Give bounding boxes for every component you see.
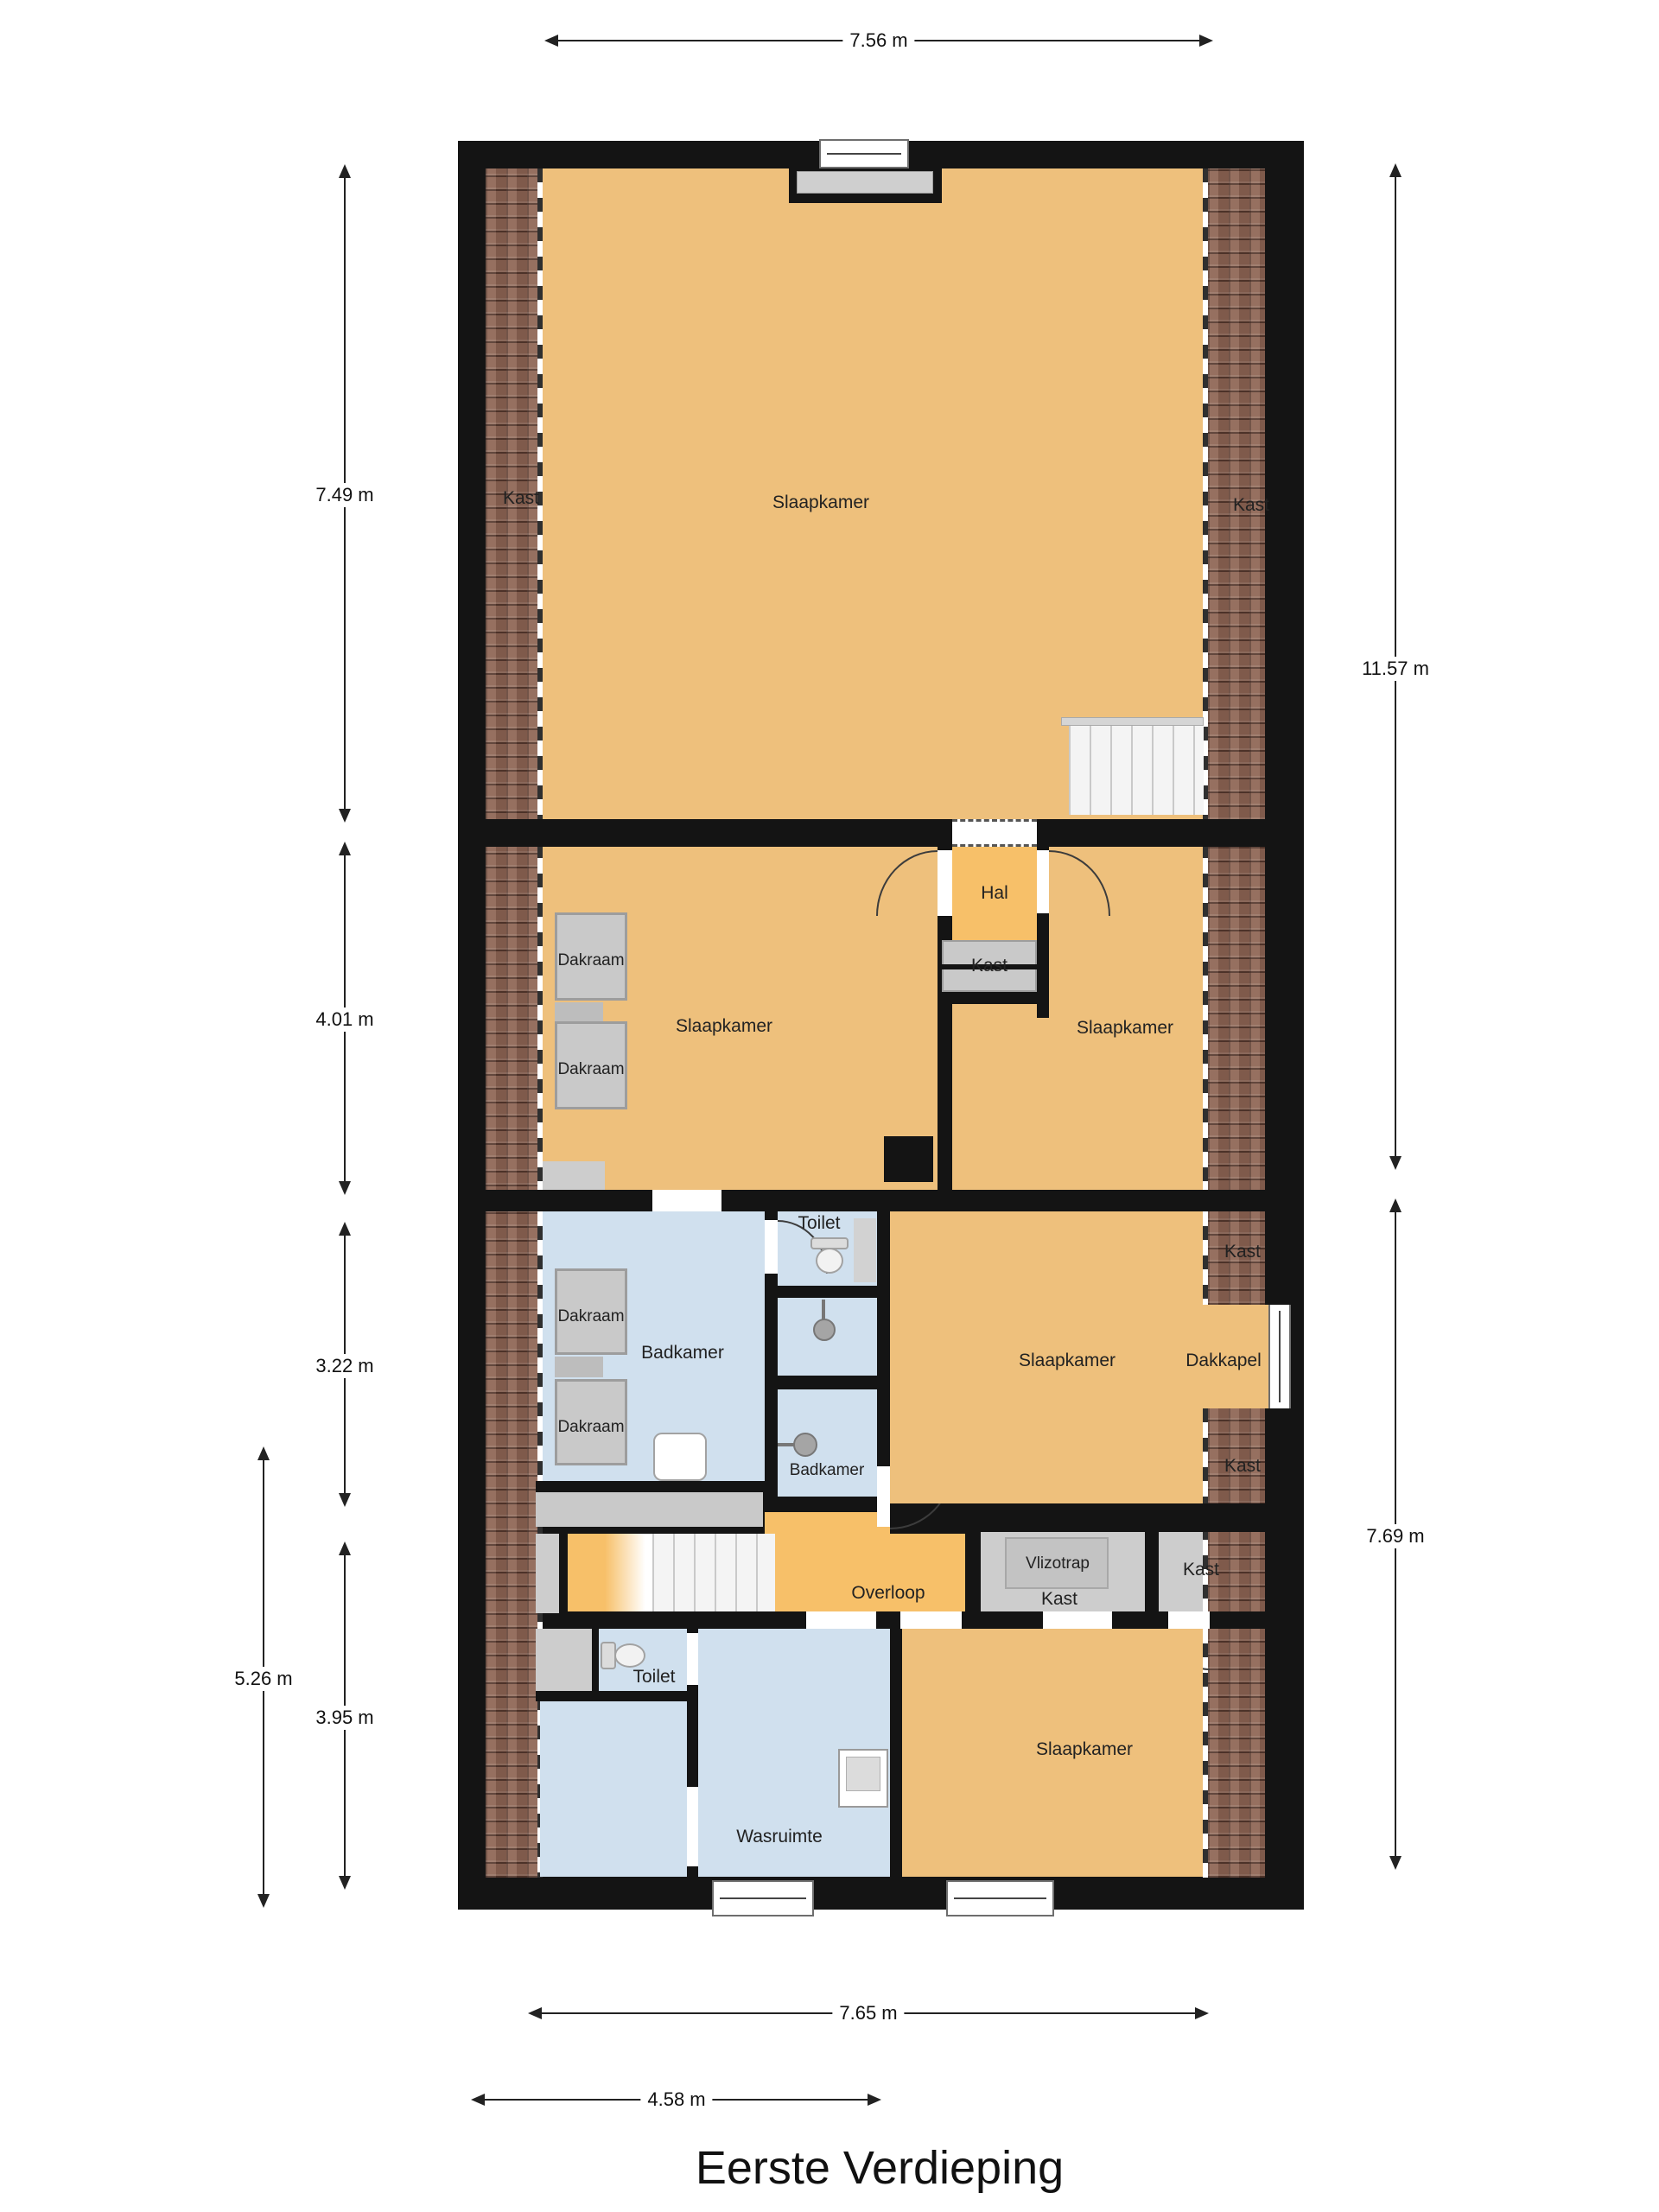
wall	[559, 1527, 568, 1613]
wall	[1145, 1532, 1159, 1611]
arrow-head	[339, 842, 351, 855]
wall	[486, 819, 1270, 847]
arrow-head	[1199, 35, 1213, 47]
label-kast-top-right: Kast	[1233, 495, 1269, 516]
label-kast-right-2: Kast	[1224, 1456, 1261, 1477]
dim-label-right-lower: 7.69 m	[1359, 1524, 1431, 1548]
shower-head-line	[822, 1300, 825, 1320]
dakraam-connector	[555, 1002, 603, 1021]
wall	[1265, 1289, 1304, 1305]
label-wasruimte: Wasruimte	[736, 1827, 823, 1847]
wall	[1265, 1408, 1304, 1424]
arrow-head	[339, 1181, 351, 1195]
arrow-head	[1389, 1156, 1402, 1170]
washing-machine-door	[846, 1757, 880, 1791]
wall	[890, 1629, 902, 1877]
wall	[959, 1503, 1270, 1532]
room-slaapkamer-middle-right-ext	[942, 992, 1049, 1190]
door-opening	[1037, 850, 1049, 913]
toilet-fixture-bowl	[614, 1643, 645, 1668]
wall	[778, 1286, 877, 1298]
label-badkamer-small: Badkamer	[790, 1461, 865, 1480]
dim-label-left-lower: 3.95 m	[308, 1706, 380, 1730]
label-slaapkamer-middle-left: Slaapkamer	[676, 1016, 772, 1037]
label-dakraam-3: Dakraam	[557, 1307, 624, 1326]
label-kast-right-1: Kast	[1224, 1242, 1261, 1262]
label-kast-row: Kast	[1183, 1560, 1219, 1580]
stair-railing	[1061, 717, 1204, 726]
window	[946, 1880, 1054, 1916]
toilet-fixture-bowl	[816, 1248, 843, 1274]
arrow-head	[257, 1894, 270, 1908]
label-toilet-upper: Toilet	[798, 1213, 840, 1234]
closet-floor	[536, 1492, 763, 1527]
door-opening	[687, 1633, 698, 1685]
wall	[592, 1629, 599, 1691]
arrow-head	[868, 2094, 881, 2106]
sink	[653, 1433, 707, 1481]
arrow-head	[339, 1222, 351, 1236]
shower-drain	[793, 1433, 817, 1457]
arrow-head	[528, 2007, 542, 2019]
dim-label-bottom: 7.65 m	[832, 2001, 904, 2025]
label-kast-top-left: Kast	[503, 488, 539, 509]
wall	[536, 1691, 694, 1701]
arrow-head	[257, 1446, 270, 1460]
door-opening	[1168, 1611, 1210, 1629]
arrow-head	[339, 1541, 351, 1555]
staircase-main	[1069, 726, 1204, 815]
floor-title: Eerste Verdieping	[696, 2141, 1064, 2195]
shower-drain	[813, 1319, 836, 1341]
shower-pipe	[778, 1443, 795, 1446]
label-slaapkamer-top: Slaapkamer	[772, 493, 869, 513]
closet-floor	[536, 1629, 592, 1691]
staircase-overloop	[652, 1534, 775, 1611]
dim-label-top: 7.56 m	[842, 29, 914, 53]
label-slaapkamer-bottom: Slaapkamer	[1036, 1739, 1133, 1760]
door-opening	[1043, 1611, 1112, 1629]
label-overloop: Overloop	[851, 1583, 925, 1604]
dim-label-left-outer: 5.26 m	[227, 1667, 299, 1691]
arrow-head	[544, 35, 558, 47]
arrow-head	[1195, 2007, 1209, 2019]
wall	[536, 1481, 778, 1492]
door-opening	[938, 850, 952, 916]
door-opening	[765, 1220, 778, 1274]
passage-opening	[687, 1787, 698, 1866]
label-dakkapel: Dakkapel	[1185, 1351, 1262, 1371]
roof-strip-left	[486, 168, 537, 1878]
arrow-head	[339, 1493, 351, 1507]
label-slaapkamer-middle-right: Slaapkamer	[1077, 1018, 1173, 1039]
label-dakraam-1: Dakraam	[557, 951, 624, 970]
label-vlizotrap: Vlizotrap	[1026, 1554, 1090, 1573]
door-opening	[652, 1190, 721, 1211]
label-dakraam-4: Dakraam	[557, 1418, 624, 1437]
roof-strip-right-lower	[1208, 1408, 1265, 1878]
dim-label-right-upper: 11.57 m	[1355, 657, 1436, 681]
door-opening	[877, 1466, 890, 1527]
stair-fade	[605, 1534, 652, 1611]
label-kast-vlizotrap: Kast	[1041, 1589, 1077, 1610]
stairwell-opening	[952, 819, 1037, 847]
label-toilet-lower: Toilet	[632, 1667, 675, 1688]
dakkapel-window	[1268, 1303, 1291, 1410]
arrow-head	[1389, 1856, 1402, 1870]
corridor-piece	[765, 1512, 890, 1535]
arrow-head	[1389, 163, 1402, 177]
arrow-head	[1389, 1198, 1402, 1212]
window	[819, 139, 909, 168]
floor-plan-canvas: Kast Slaapkamer Kast Kast Dakraam Dakraa…	[0, 0, 1659, 2212]
door-opening	[900, 1611, 962, 1629]
arrow-head	[339, 1876, 351, 1890]
wall	[765, 1497, 890, 1512]
arrow-head	[471, 2094, 485, 2106]
label-badkamer-main: Badkamer	[641, 1343, 724, 1363]
closet-floor	[543, 1161, 605, 1190]
door-opening	[806, 1611, 876, 1629]
arrow-head	[339, 164, 351, 178]
dim-label-bottom-left: 4.58 m	[640, 2088, 712, 2112]
roof-strip-right-upper	[1208, 168, 1265, 1305]
wall	[778, 1376, 877, 1389]
arrow-head	[339, 809, 351, 823]
dim-label-left-middle: 4.01 m	[308, 1007, 380, 1032]
room-bottom-left	[540, 1701, 687, 1877]
wall	[965, 1534, 981, 1611]
label-dakraam-2: Dakraam	[557, 1060, 624, 1079]
wall	[1037, 992, 1049, 1018]
dim-label-left-upper: 7.49 m	[308, 483, 380, 507]
wall	[486, 1190, 1270, 1211]
label-kast-hal: Kast	[971, 956, 1007, 976]
dim-label-left-bath: 3.22 m	[308, 1354, 380, 1378]
closet-floor	[536, 1534, 559, 1613]
dormer-ledge	[797, 171, 933, 194]
dakraam-connector	[555, 1357, 603, 1377]
wall	[942, 992, 1046, 1004]
label-slaapkamer-bath-band: Slaapkamer	[1019, 1351, 1116, 1371]
window	[712, 1880, 814, 1916]
chimney-block	[884, 1136, 933, 1182]
closet-floor	[854, 1218, 876, 1282]
wall	[877, 1211, 890, 1466]
label-hal: Hal	[981, 883, 1008, 904]
